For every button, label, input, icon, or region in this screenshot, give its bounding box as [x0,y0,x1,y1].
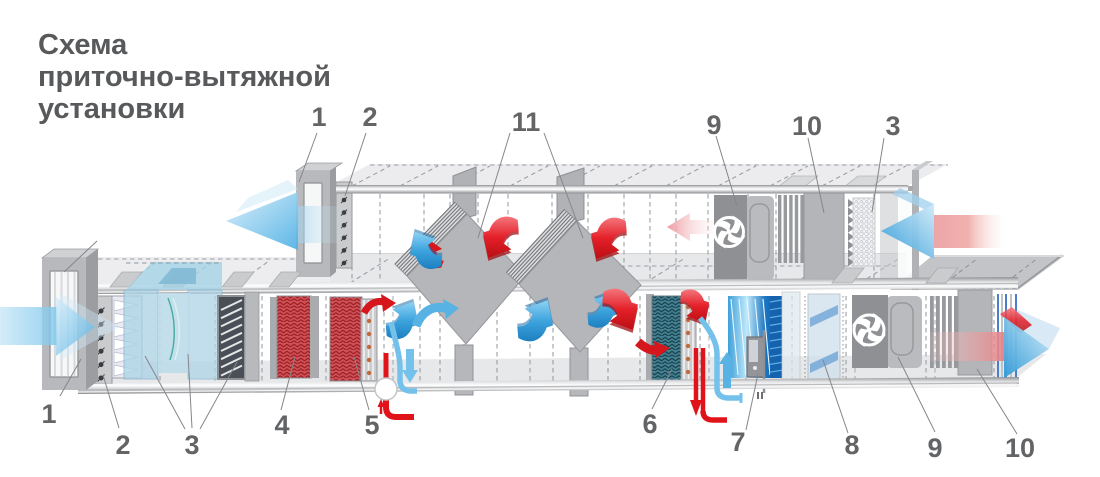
svg-text:2: 2 [115,430,130,460]
svg-text:2: 2 [362,102,377,132]
svg-text:1: 1 [41,399,56,429]
svg-text:1: 1 [311,102,326,132]
svg-text:10: 10 [1005,433,1035,463]
svg-text:5: 5 [364,410,379,440]
svg-text:7: 7 [730,427,745,457]
svg-text:3: 3 [885,111,900,141]
svg-text:9: 9 [927,433,942,463]
svg-text:Схемаприточно-вытяжнойустановк: Схемаприточно-вытяжнойустановки [38,29,331,125]
svg-text:4: 4 [274,410,289,440]
svg-text:11: 11 [512,107,541,137]
svg-text:9: 9 [706,110,721,140]
svg-text:6: 6 [642,409,657,439]
svg-text:3: 3 [184,430,199,460]
svg-text:8: 8 [844,430,859,460]
svg-text:10: 10 [792,111,822,141]
